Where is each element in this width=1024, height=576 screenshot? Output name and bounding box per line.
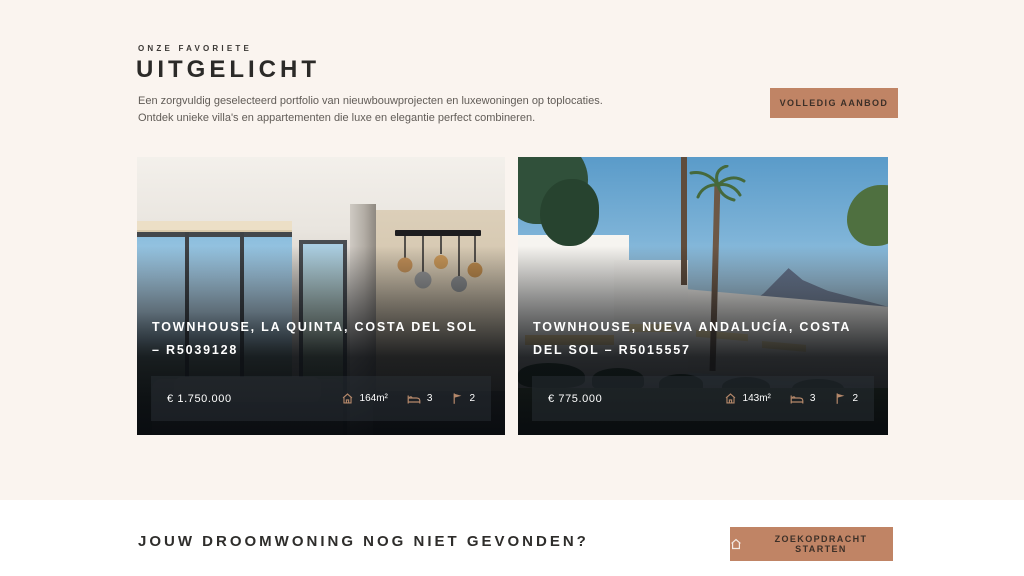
card-stats: 143m² 3 2 <box>724 392 858 405</box>
section-title: UITGELICHT <box>136 56 320 84</box>
stat-area: 164m² <box>341 392 388 405</box>
card-price: € 1.750.000 <box>167 393 232 405</box>
stat-bedrooms: 3 <box>790 393 816 405</box>
card-stats: 164m² 3 2 <box>341 392 475 405</box>
start-search-label: ZOEKOPDRACHT STARTEN <box>749 534 893 554</box>
stat-bathrooms: 2 <box>451 392 475 405</box>
stat-bathrooms: 2 <box>834 392 858 405</box>
card-price: € 775.000 <box>548 393 602 405</box>
stat-bathrooms-value: 2 <box>469 393 475 404</box>
section-eyebrow: ONZE FAVORIETE <box>138 44 252 53</box>
full-listing-button[interactable]: VOLLEDIG AANBOD <box>770 88 898 118</box>
featured-section: ONZE FAVORIETE UITGELICHT Een zorgvuldig… <box>0 0 1024 576</box>
home-icon <box>730 538 742 550</box>
stat-bathrooms-value: 2 <box>852 393 858 404</box>
stat-bedrooms-value: 3 <box>810 393 816 404</box>
card-title[interactable]: TOWNHOUSE, NUEVA ANDALUCÍA, COSTA DEL SO… <box>533 316 874 362</box>
stat-area-value: 143m² <box>743 393 771 404</box>
property-card-nueva-andalucia[interactable]: TOWNHOUSE, NUEVA ANDALUCÍA, COSTA DEL SO… <box>518 157 888 435</box>
flag-icon <box>834 392 846 405</box>
cta-title: JOUW DROOMWONING NOG NIET GEVONDEN? <box>138 533 589 550</box>
stat-area: 143m² <box>724 392 771 405</box>
property-card-la-quinta[interactable]: TOWNHOUSE, LA QUINTA, COSTA DEL SOL – R5… <box>137 157 505 435</box>
stat-bedrooms: 3 <box>407 393 433 405</box>
card-footer: € 775.000 143m² 3 2 <box>532 376 874 421</box>
card-title[interactable]: TOWNHOUSE, LA QUINTA, COSTA DEL SOL – R5… <box>152 316 491 362</box>
bed-icon <box>790 393 804 405</box>
bed-icon <box>407 393 421 405</box>
flag-icon <box>451 392 463 405</box>
start-search-button[interactable]: ZOEKOPDRACHT STARTEN <box>730 527 893 561</box>
section-description: Een zorgvuldig geselecteerd portfolio va… <box>138 93 638 127</box>
property-cards: TOWNHOUSE, LA QUINTA, COSTA DEL SOL – R5… <box>137 157 888 435</box>
stat-area-value: 164m² <box>360 393 388 404</box>
house-icon <box>724 392 737 405</box>
house-icon <box>341 392 354 405</box>
card-footer: € 1.750.000 164m² 3 2 <box>151 376 491 421</box>
stat-bedrooms-value: 3 <box>427 393 433 404</box>
